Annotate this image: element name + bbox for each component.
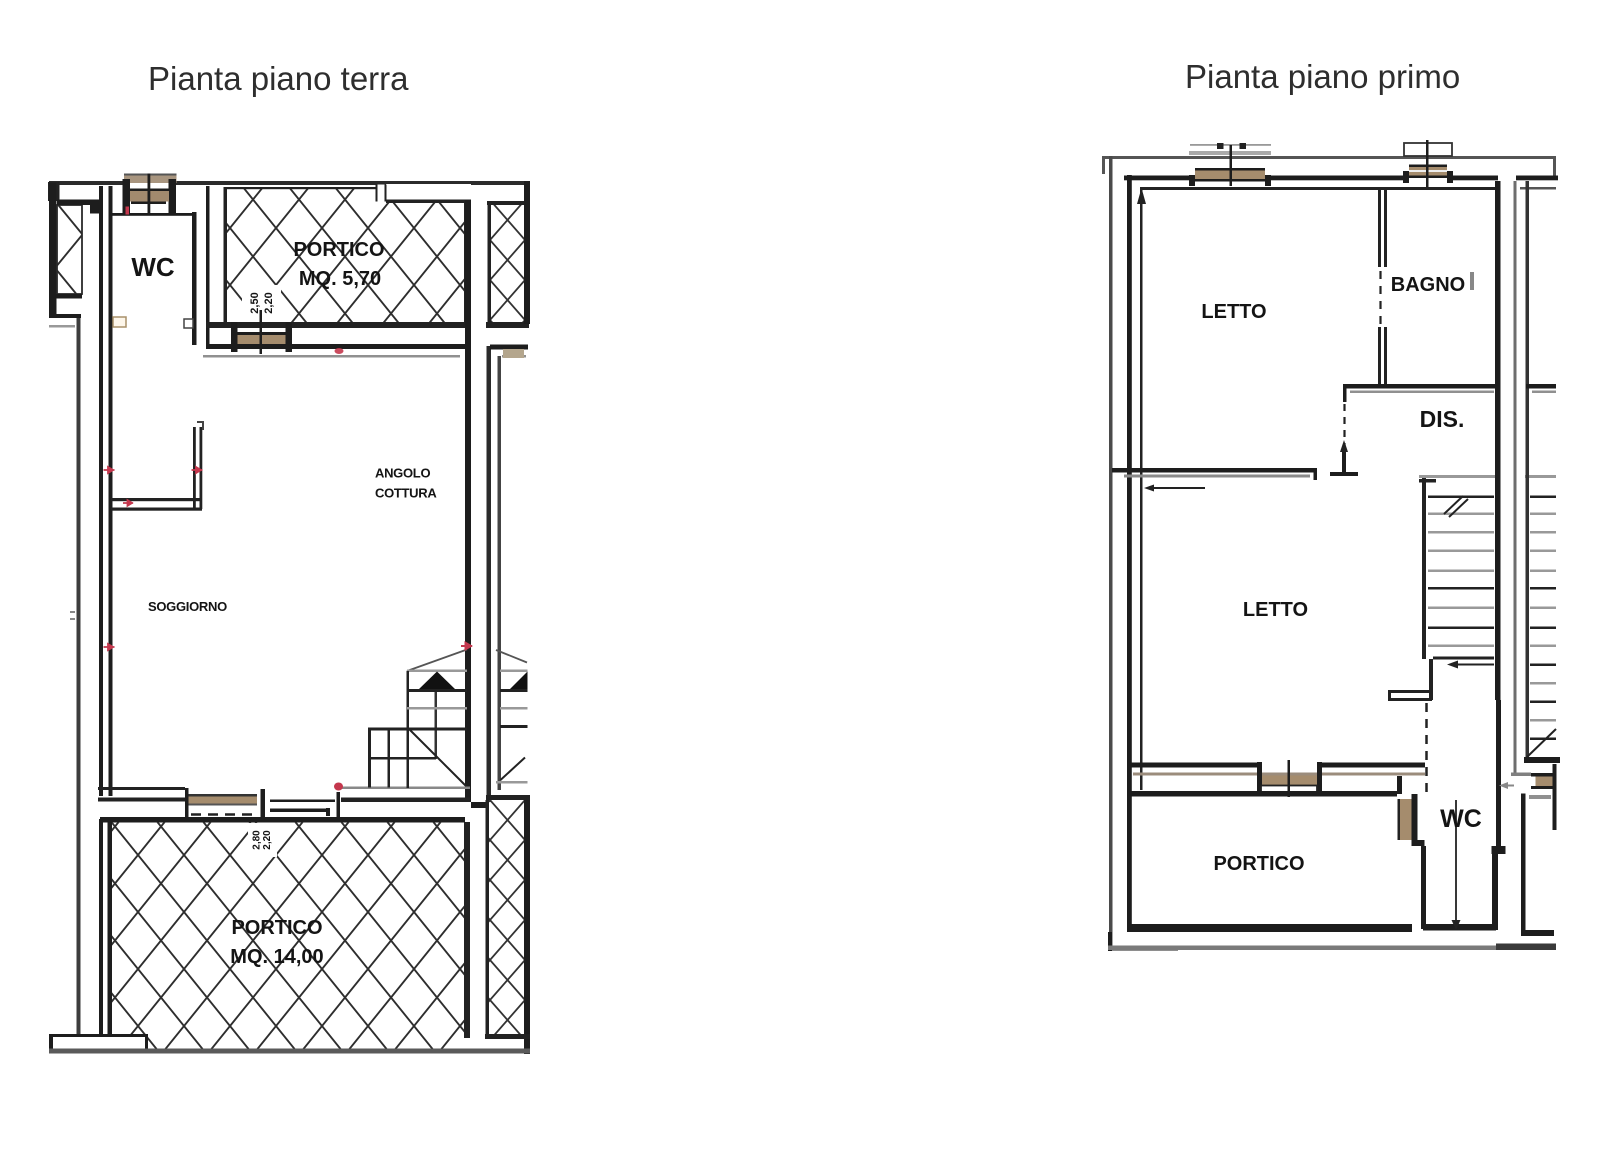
svg-text:2,20: 2,20 bbox=[263, 292, 275, 313]
svg-text:PORTICO: PORTICO bbox=[1213, 853, 1304, 875]
svg-text:PORTICO: PORTICO bbox=[293, 239, 384, 261]
svg-text:COTTURA: COTTURA bbox=[375, 486, 437, 501]
svg-text:ANGOLO: ANGOLO bbox=[375, 466, 430, 481]
svg-text:LETTO: LETTO bbox=[1243, 599, 1308, 621]
svg-text:Pianta piano primo: Pianta piano primo bbox=[1185, 58, 1460, 95]
svg-text:Pianta piano terra: Pianta piano terra bbox=[148, 60, 409, 97]
svg-text:DIS.: DIS. bbox=[1420, 406, 1465, 432]
svg-text:PORTICO: PORTICO bbox=[231, 917, 322, 939]
svg-text:2,20: 2,20 bbox=[262, 830, 273, 850]
svg-text:SOGGIORNO: SOGGIORNO bbox=[148, 599, 227, 614]
svg-text:2,80: 2,80 bbox=[252, 830, 263, 850]
svg-text:MQ. 5,70: MQ. 5,70 bbox=[299, 268, 381, 290]
svg-text:WC: WC bbox=[1440, 805, 1482, 833]
svg-text:2,50: 2,50 bbox=[249, 292, 261, 313]
svg-text:MQ. 14,00: MQ. 14,00 bbox=[230, 946, 323, 968]
svg-text:WC: WC bbox=[131, 252, 175, 282]
svg-text:LETTO: LETTO bbox=[1201, 301, 1266, 323]
svg-text:BAGNO: BAGNO bbox=[1391, 274, 1465, 296]
